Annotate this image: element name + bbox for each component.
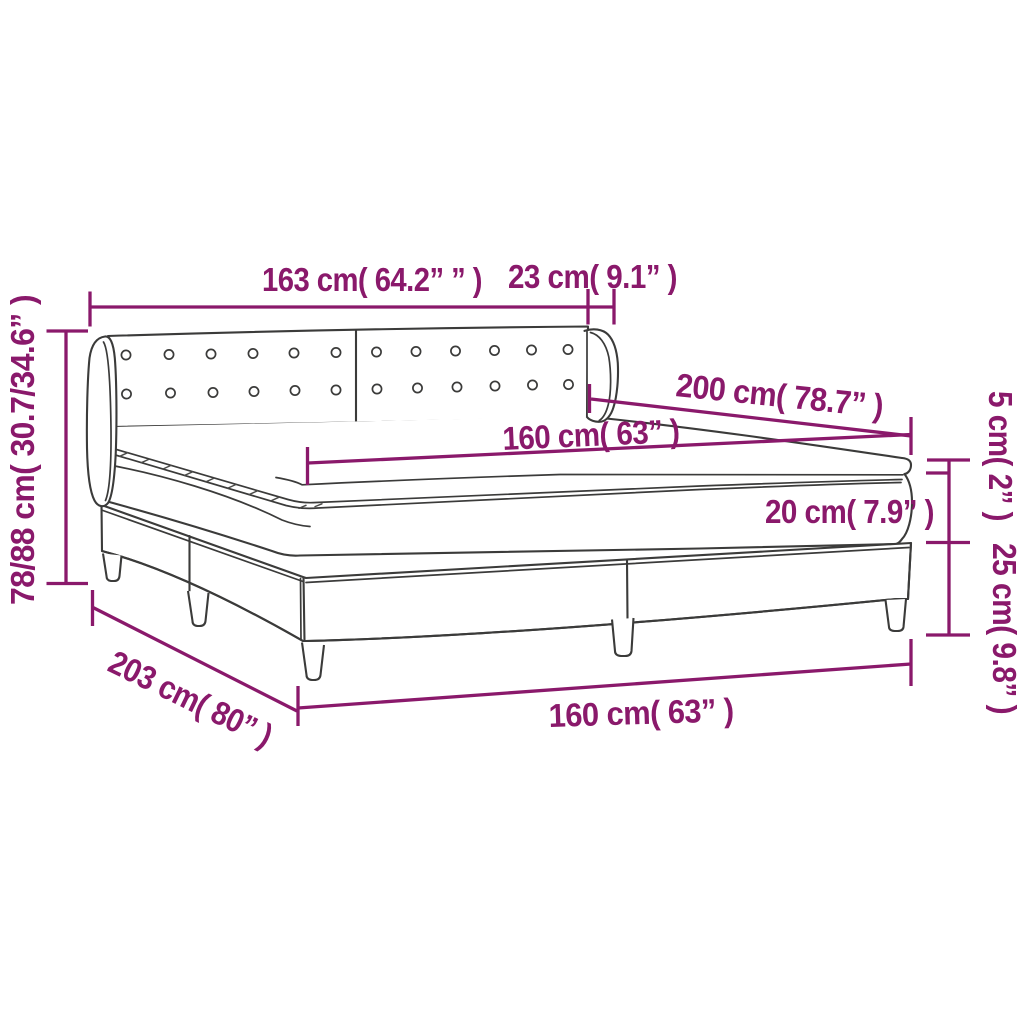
svg-text:163 cm( 64.2” ” ): 163 cm( 64.2” ” ) bbox=[262, 261, 482, 298]
svg-text:78/88 cm( 30.7/34.6” ): 78/88 cm( 30.7/34.6” ) bbox=[4, 295, 41, 605]
svg-text:160 cm( 63” ): 160 cm( 63” ) bbox=[548, 691, 734, 734]
svg-text:20 cm( 7.9” ): 20 cm( 7.9” ) bbox=[765, 493, 934, 530]
svg-text:23 cm( 9.1” ): 23 cm( 9.1” ) bbox=[508, 258, 677, 295]
svg-text:5 cm( 2” ): 5 cm( 2” ) bbox=[982, 391, 1019, 521]
svg-text:25 cm( 9.8” ): 25 cm( 9.8” ) bbox=[986, 543, 1023, 714]
